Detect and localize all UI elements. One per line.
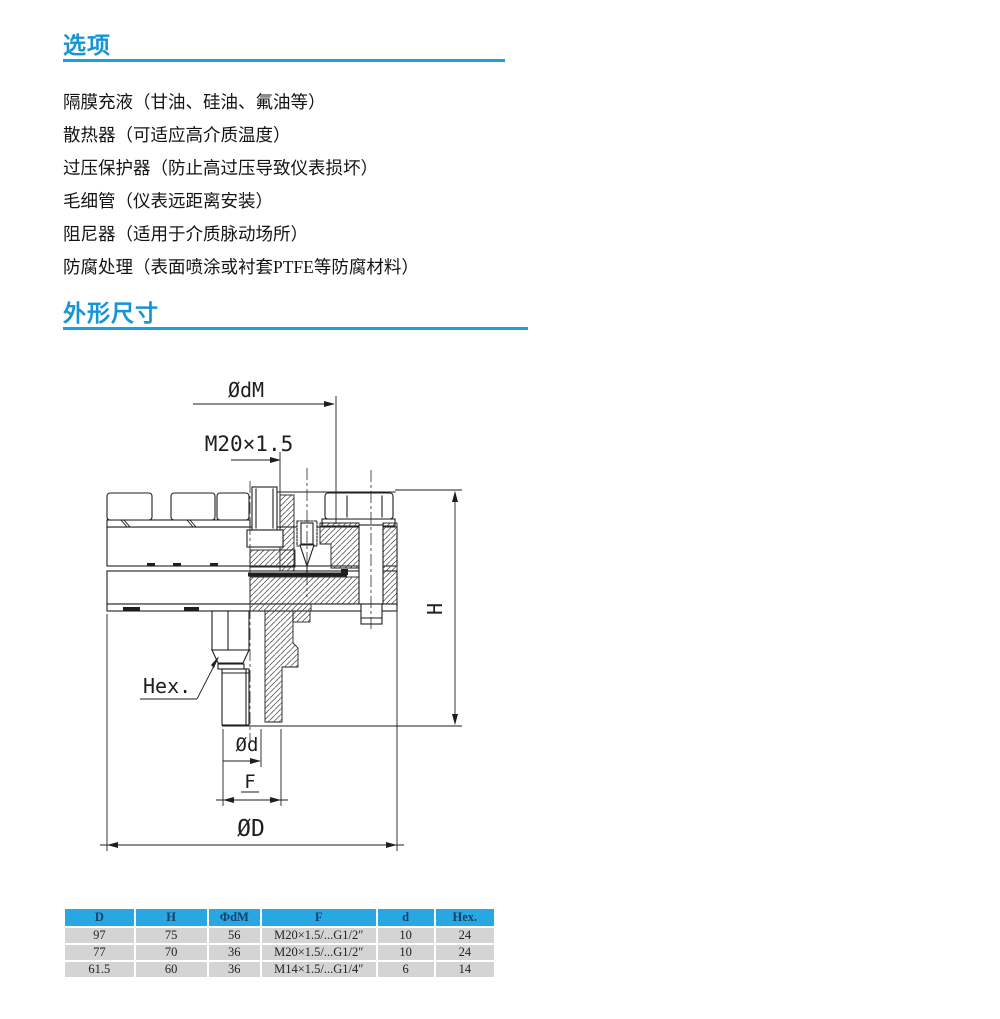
label-f: F bbox=[244, 771, 255, 793]
cell-H: 60 bbox=[136, 962, 207, 977]
column-header: H bbox=[136, 909, 207, 926]
cell-d: 10 bbox=[378, 945, 434, 960]
process-connection-section bbox=[265, 611, 298, 722]
column-header: ΦdM bbox=[209, 909, 261, 926]
bolt-head bbox=[325, 493, 393, 519]
cell-H: 70 bbox=[136, 945, 207, 960]
label-hex: Hex. bbox=[143, 674, 191, 698]
table-row: 77 70 36 M20×1.5/...G1/2″ 10 24 bbox=[65, 945, 494, 960]
cell-D: 97 bbox=[65, 928, 134, 943]
bolt-head bbox=[217, 493, 249, 520]
cell-dM: 56 bbox=[209, 928, 261, 943]
label-dia-dm: ØdM bbox=[228, 378, 264, 402]
threaded-stem bbox=[222, 669, 249, 725]
cell-dM: 36 bbox=[209, 962, 261, 977]
cell-d: 6 bbox=[378, 962, 434, 977]
cell-D: 77 bbox=[65, 945, 134, 960]
cell-Hex: 24 bbox=[436, 928, 494, 943]
cell-H: 75 bbox=[136, 928, 207, 943]
cell-d: 10 bbox=[378, 928, 434, 943]
bolt-head bbox=[171, 493, 215, 520]
column-header: Hex. bbox=[436, 909, 494, 926]
table-header-row: DHΦdMFdHex. bbox=[65, 909, 494, 926]
bolt-head bbox=[107, 493, 152, 520]
cell-Hex: 14 bbox=[436, 962, 494, 977]
label-thread: M20×1.5 bbox=[205, 432, 294, 456]
dimension-table: DHΦdMFdHex. 97 75 56 M20×1.5/...G1/2″ 10… bbox=[63, 907, 496, 979]
cell-Hex: 24 bbox=[436, 945, 494, 960]
table-body: 97 75 56 M20×1.5/...G1/2″ 10 24 77 70 36… bbox=[65, 928, 494, 977]
table-row: 97 75 56 M20×1.5/...G1/2″ 10 24 bbox=[65, 928, 494, 943]
datasheet-page: 选项 隔膜充液（甘油、硅油、氟油等） 散热器（可适应高介质温度） 过压保护器（防… bbox=[0, 0, 1000, 1019]
cell-D: 61.5 bbox=[65, 962, 134, 977]
label-dia-d: Ød bbox=[236, 734, 259, 756]
column-header: D bbox=[65, 909, 134, 926]
label-height: H bbox=[423, 603, 447, 615]
label-dia-big: ØD bbox=[237, 816, 265, 842]
hex-adapter bbox=[212, 611, 249, 669]
dimension-drawing: ØdM M20×1.5 H Hex. Ød F ØD bbox=[0, 0, 1000, 1019]
cell-dM: 36 bbox=[209, 945, 261, 960]
column-header: F bbox=[262, 909, 376, 926]
column-header: d bbox=[378, 909, 434, 926]
cell-F: M14×1.5/...G1/4″ bbox=[262, 962, 376, 977]
cell-F: M20×1.5/...G1/2″ bbox=[262, 945, 376, 960]
cell-F: M20×1.5/...G1/2″ bbox=[262, 928, 376, 943]
table-row: 61.5 60 36 M14×1.5/...G1/4″ 6 14 bbox=[65, 962, 494, 977]
